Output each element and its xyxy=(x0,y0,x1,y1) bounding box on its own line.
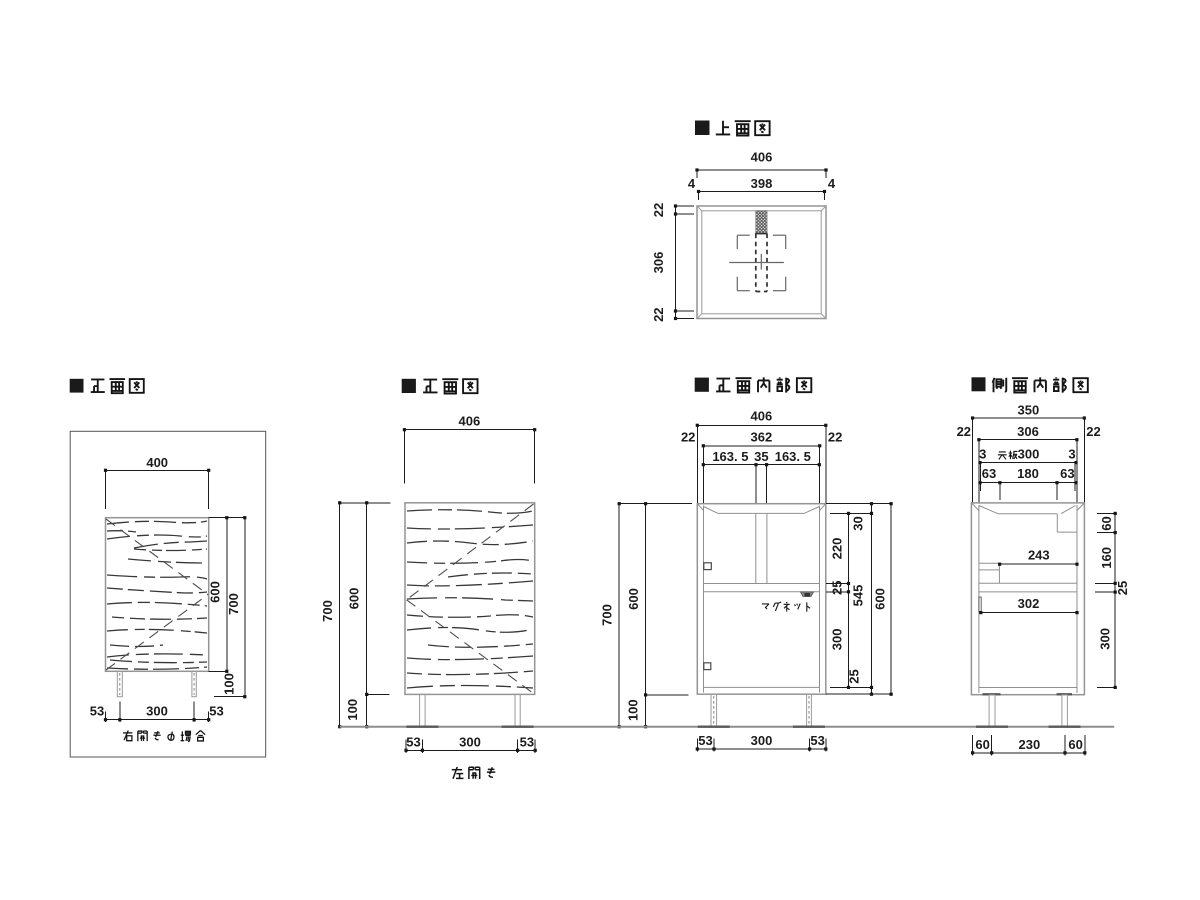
svg-text:53: 53 xyxy=(90,704,104,719)
svg-text:4: 4 xyxy=(828,176,836,191)
svg-text:22: 22 xyxy=(651,307,666,321)
svg-text:160: 160 xyxy=(1099,547,1114,569)
svg-text:22: 22 xyxy=(828,430,842,445)
svg-text:163. 5: 163. 5 xyxy=(775,449,811,464)
svg-text:100: 100 xyxy=(345,699,360,721)
svg-text:22: 22 xyxy=(1086,424,1100,439)
svg-text:302: 302 xyxy=(1018,596,1040,611)
svg-text:163. 5: 163. 5 xyxy=(712,449,748,464)
svg-text:30: 30 xyxy=(851,516,866,530)
svg-text:243: 243 xyxy=(1028,548,1050,563)
svg-text:300: 300 xyxy=(459,735,481,750)
svg-text:100: 100 xyxy=(626,699,641,721)
svg-text:406: 406 xyxy=(751,409,773,424)
svg-text:60: 60 xyxy=(975,737,989,752)
svg-text:300: 300 xyxy=(1018,447,1040,462)
svg-text:300: 300 xyxy=(830,629,845,651)
svg-text:3: 3 xyxy=(1068,447,1075,462)
svg-text:63: 63 xyxy=(1060,466,1074,481)
svg-text:300: 300 xyxy=(146,704,168,719)
svg-text:700: 700 xyxy=(320,600,335,622)
svg-text:400: 400 xyxy=(146,455,168,470)
svg-text:3: 3 xyxy=(979,447,986,462)
svg-text:406: 406 xyxy=(459,414,481,429)
svg-text:362: 362 xyxy=(751,430,773,445)
svg-text:300: 300 xyxy=(1098,628,1113,650)
svg-text:230: 230 xyxy=(1019,737,1041,752)
svg-text:306: 306 xyxy=(651,252,666,274)
svg-text:53: 53 xyxy=(698,733,712,748)
svg-text:300: 300 xyxy=(751,733,773,748)
svg-text:406: 406 xyxy=(751,150,773,165)
svg-text:53: 53 xyxy=(520,735,534,750)
svg-text:180: 180 xyxy=(1017,466,1039,481)
svg-text:22: 22 xyxy=(681,430,695,445)
svg-text:25: 25 xyxy=(1115,581,1130,595)
svg-text:25: 25 xyxy=(830,581,845,595)
svg-text:53: 53 xyxy=(406,735,420,750)
svg-text:53: 53 xyxy=(209,704,223,719)
svg-text:600: 600 xyxy=(626,588,641,610)
svg-text:35: 35 xyxy=(754,449,768,464)
svg-text:22: 22 xyxy=(957,424,971,439)
svg-text:63: 63 xyxy=(982,466,996,481)
svg-text:600: 600 xyxy=(347,588,362,610)
svg-text:4: 4 xyxy=(688,176,696,191)
svg-text:60: 60 xyxy=(1099,516,1114,530)
svg-text:60: 60 xyxy=(1068,737,1082,752)
svg-text:25: 25 xyxy=(847,669,862,683)
svg-text:545: 545 xyxy=(851,585,866,607)
svg-text:600: 600 xyxy=(872,588,887,610)
svg-text:22: 22 xyxy=(651,203,666,217)
svg-text:700: 700 xyxy=(600,604,615,626)
svg-text:700: 700 xyxy=(226,593,241,615)
svg-text:53: 53 xyxy=(810,733,824,748)
svg-text:100: 100 xyxy=(222,673,237,695)
svg-text:398: 398 xyxy=(751,176,773,191)
svg-text:350: 350 xyxy=(1018,403,1040,418)
svg-text:220: 220 xyxy=(830,538,845,560)
svg-text:600: 600 xyxy=(208,581,223,603)
svg-text:306: 306 xyxy=(1017,424,1039,439)
